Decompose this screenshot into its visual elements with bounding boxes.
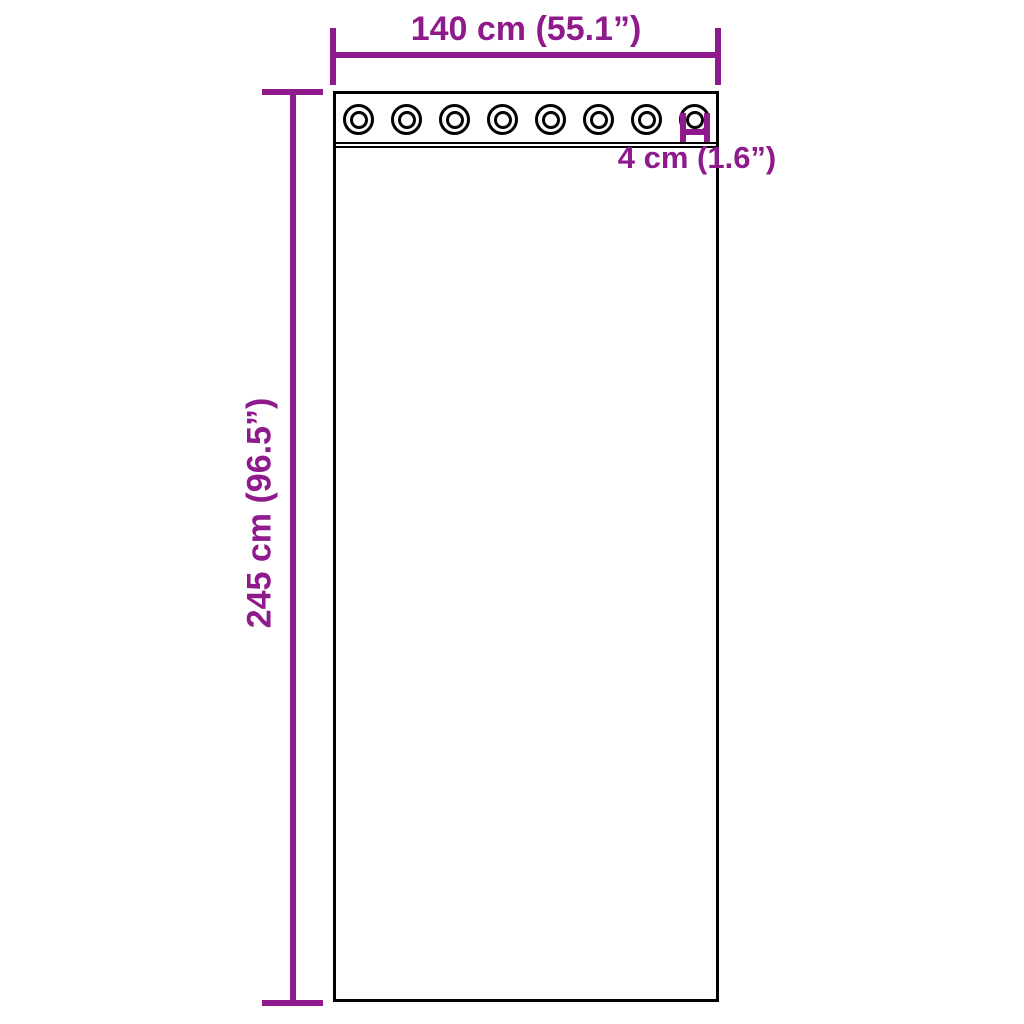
grommet-inner-ring (398, 111, 416, 129)
height-dimension-line (290, 92, 296, 1003)
height-dimension-top-tick (262, 89, 323, 95)
grommet-inner-ring (494, 111, 512, 129)
grommet (631, 104, 662, 135)
grommet-inner-ring (638, 111, 656, 129)
grommet-inner-ring (542, 111, 560, 129)
grommet-row (343, 104, 710, 135)
height-dimension-label: 245 cm (96.5”) (241, 398, 280, 629)
width-dimension-line (333, 52, 719, 58)
grommet-dimension-right-tick (704, 113, 710, 142)
grommet-inner-ring (686, 111, 704, 129)
grommet (583, 104, 614, 135)
grommet (487, 104, 518, 135)
grommet (343, 104, 374, 135)
grommet-inner-ring (590, 111, 608, 129)
curtain-dimension-diagram: 140 cm (55.1”) 245 cm (96.5”) 4 cm (1.6”… (0, 0, 1024, 1024)
curtain-panel (333, 91, 719, 1002)
grommet (391, 104, 422, 135)
grommet-dimension-bar (680, 129, 710, 135)
grommet-dimension-left-tick (680, 113, 686, 142)
width-dimension-label: 140 cm (55.1”) (333, 10, 719, 49)
grommet (535, 104, 566, 135)
grommet-inner-ring (350, 111, 368, 129)
grommet-inner-ring (446, 111, 464, 129)
grommet (439, 104, 470, 135)
grommet-dimension-label: 4 cm (1.6”) (618, 140, 777, 176)
height-dimension-bottom-tick (262, 1000, 323, 1006)
